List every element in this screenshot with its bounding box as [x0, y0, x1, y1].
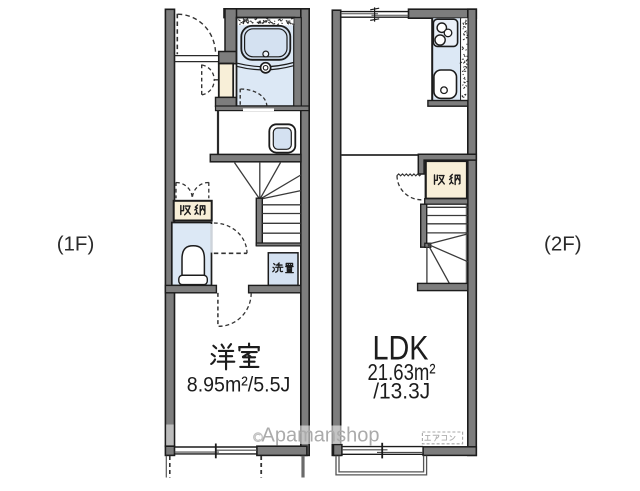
svg-text:/13.3J: /13.3J	[373, 378, 430, 403]
svg-text:(1F): (1F)	[57, 232, 95, 255]
svg-text:8.95m²/5.5J: 8.95m²/5.5J	[187, 373, 290, 396]
svg-text:(2F): (2F)	[544, 232, 582, 255]
svg-text:Apamanshop: Apamanshop	[262, 425, 380, 447]
